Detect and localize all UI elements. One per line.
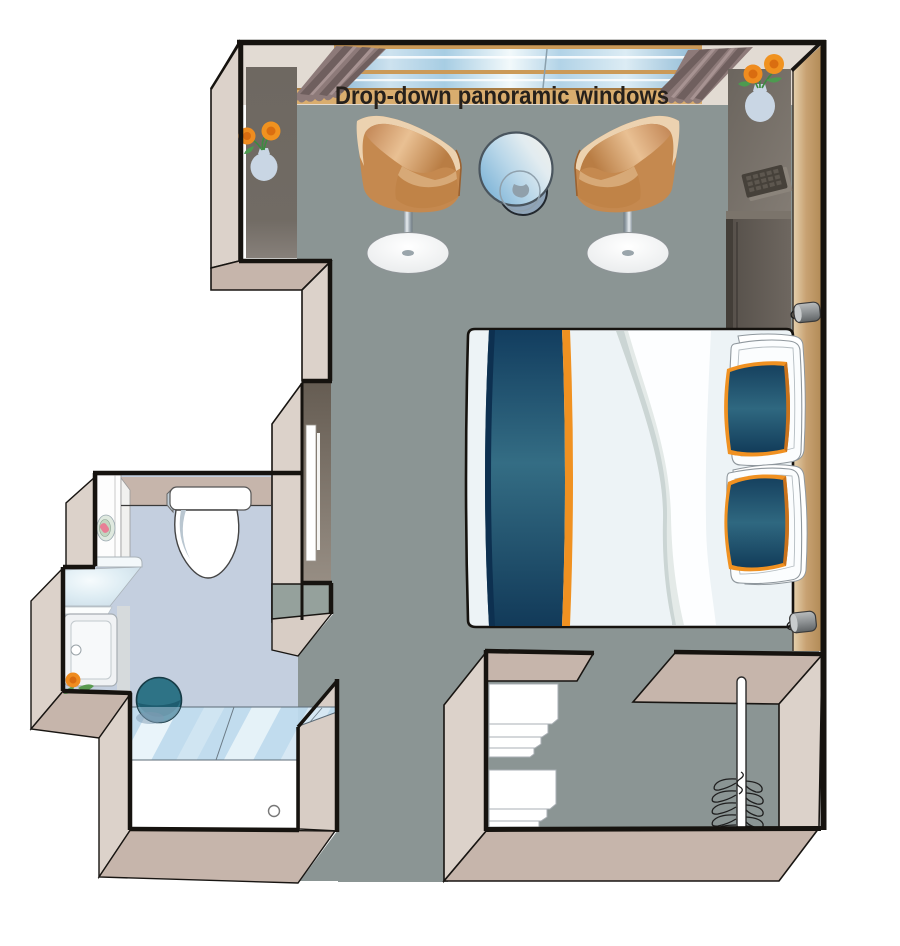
svg-text:Drop-down panoramic windows: Drop-down panoramic windows [335,82,669,110]
